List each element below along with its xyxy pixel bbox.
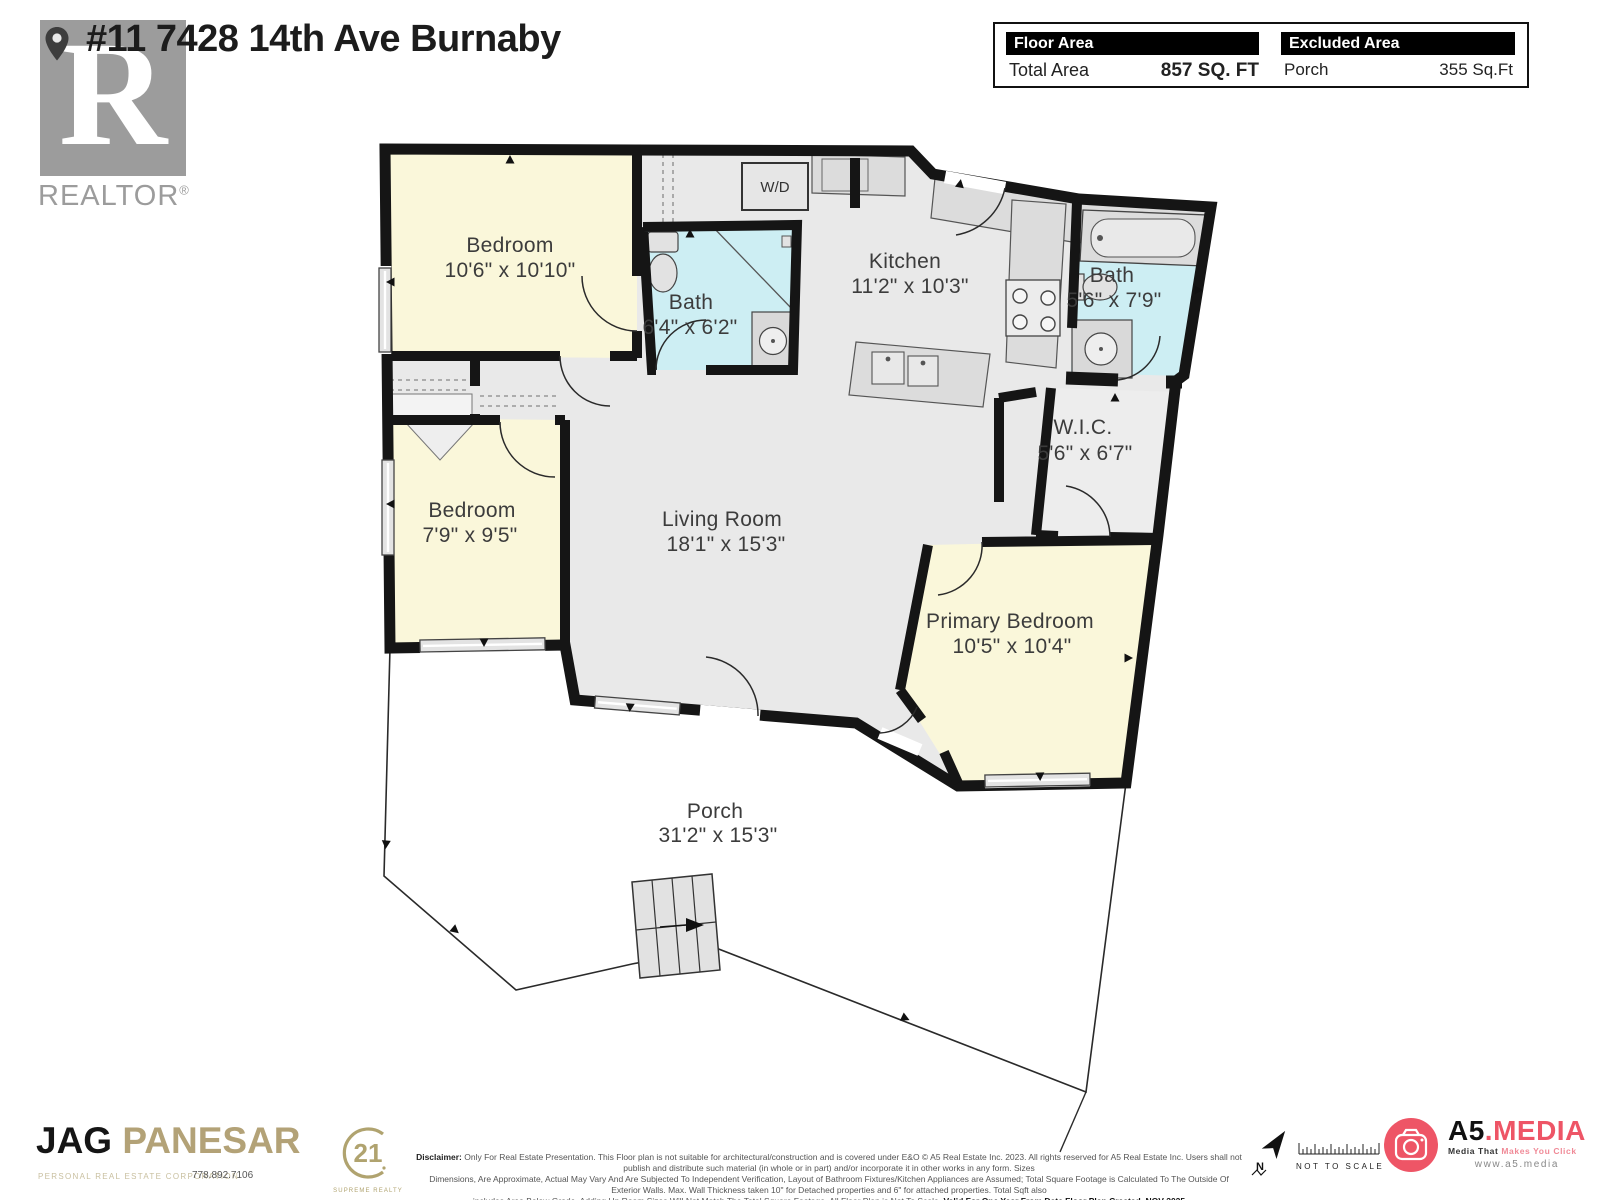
label-bedroom1-dims: 10'6" x 10'10"	[444, 259, 575, 282]
floorplan-drawing: Bedroom 10'6" x 10'10" Bath 6'4" x 6'2" …	[360, 130, 1220, 1170]
label-wic-dims: 5'6" x 6'7"	[1037, 442, 1132, 465]
label-kitchen-name: Kitchen	[869, 250, 941, 273]
room-primary	[900, 540, 1155, 783]
not-to-scale: NOT TO SCALE	[1296, 1140, 1382, 1171]
ruler-icon	[1298, 1140, 1380, 1156]
porch-stairs	[632, 874, 720, 978]
closet-shelf	[388, 394, 472, 416]
disclaimer: Disclaimer: Only For Real Estate Present…	[415, 1152, 1243, 1200]
total-area-value: 857 SQ. FT	[1125, 60, 1259, 82]
label-bedroom2-name: Bedroom	[428, 499, 515, 522]
total-area-label: Total Area	[1009, 60, 1089, 81]
svg-text:21: 21	[354, 1138, 383, 1168]
a5-media-logo: A5.MEDIA Media That Makes You Click www.…	[1382, 1116, 1586, 1174]
stove	[1006, 280, 1060, 336]
excluded-area-name: Porch	[1284, 60, 1328, 80]
floor-area-header: Floor Area	[1006, 32, 1259, 55]
agent-phone: 778.892.7106	[192, 1170, 253, 1181]
not-to-scale-label: NOT TO SCALE	[1296, 1162, 1382, 1171]
a5-camera-icon	[1382, 1116, 1440, 1174]
label-primary-name: Primary Bedroom	[926, 610, 1094, 633]
a5-tagline: Media That Makes You Click	[1448, 1146, 1586, 1156]
label-bath2-dims: 5'6" x 7'9"	[1066, 289, 1161, 312]
label-living-dims: 18'1" x 15'3"	[666, 533, 785, 556]
agent-name: JAG PANESAR	[36, 1120, 301, 1162]
label-kitchen-dims: 11'2" x 10'3"	[851, 275, 969, 298]
brokerage-logo: 21 SUPREME REALTY	[333, 1124, 403, 1194]
a5-wordmark: A5.MEDIA	[1448, 1116, 1586, 1146]
compass-icon: N	[1248, 1124, 1300, 1185]
label-bath1-dims: 6'4" x 6'2"	[642, 316, 737, 339]
page-title: #11 7428 14th Ave Burnaby	[86, 18, 561, 61]
label-bath1-name: Bath	[669, 291, 713, 314]
realtor-wordmark: REALTOR®	[38, 180, 190, 213]
excluded-area-header: Excluded Area	[1281, 32, 1515, 55]
kitchen-island	[849, 342, 990, 407]
label-bath2-name: Bath	[1090, 264, 1134, 287]
label-bedroom1-name: Bedroom	[466, 234, 553, 257]
century21-seal: 21	[339, 1124, 397, 1182]
excluded-area-value: 355 Sq.Ft	[1391, 60, 1513, 80]
label-living-name: Living Room	[662, 508, 782, 531]
floorplan-page: R REALTOR® #11 7428 14th Ave Burnaby Flo…	[0, 0, 1600, 1200]
a5-url: www.a5.media	[1448, 1159, 1586, 1170]
label-wd: W/D	[760, 179, 789, 196]
label-wic-name: W.I.C.	[1054, 416, 1113, 439]
label-primary-dims: 10'5" x 10'4"	[952, 635, 1071, 658]
label-porch-name: Porch	[687, 800, 743, 823]
brokerage-name: SUPREME REALTY	[333, 1188, 403, 1194]
location-pin-icon	[44, 26, 70, 62]
label-porch-dims: 31'2" x 15'3"	[658, 824, 777, 847]
area-summary-box: Floor Area Excluded Area Total Area 857 …	[993, 22, 1529, 88]
label-bedroom2-dims: 7'9" x 9'5"	[422, 524, 517, 547]
